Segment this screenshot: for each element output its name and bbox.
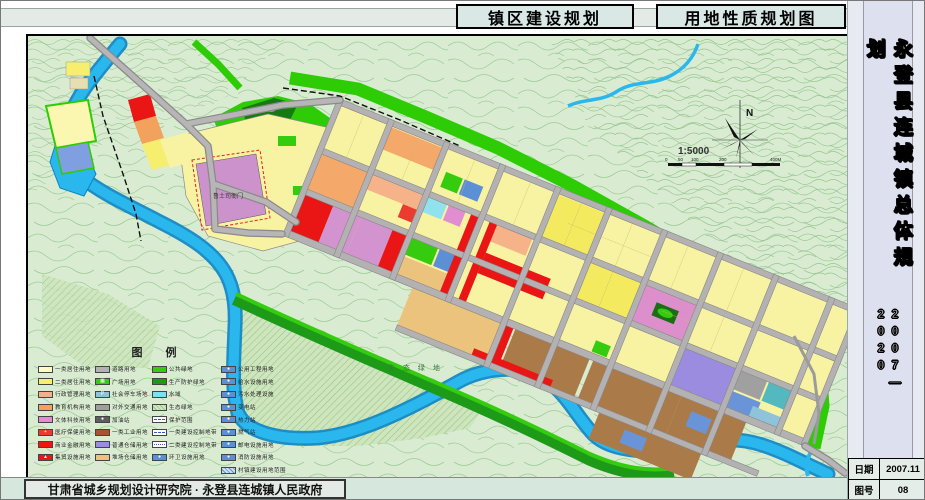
legend-swatch	[38, 366, 53, 373]
legend-item-label: 加油站	[112, 416, 130, 424]
legend-swatch: ▦	[95, 378, 110, 385]
legend-item-label: 保护范围	[169, 416, 193, 424]
legend-item-label: 水域	[169, 390, 181, 398]
heritage-site-label: 鲁土司衙门	[213, 192, 243, 200]
legend-item: ●燃气站	[221, 426, 286, 439]
legend-item: 道路用地	[95, 363, 148, 376]
legend-item-label: 行政管理用地	[55, 390, 91, 398]
legend-item: ▦广场用地	[95, 376, 148, 389]
legend-item: ●热力站	[221, 413, 286, 426]
legend-swatch	[95, 454, 110, 461]
scale-ratio: 1:5000	[678, 146, 710, 157]
svg-text:400M: 400M	[770, 157, 782, 162]
title-block: 永登县连城镇总体规划 2007—2020 日期 2007.11 图号 08	[847, 1, 925, 500]
legend-item: 普通仓储用地	[95, 439, 148, 452]
legend-swatch	[152, 378, 167, 385]
legend-swatch	[38, 441, 53, 448]
legend-item-label: 文体科技用地	[55, 416, 91, 424]
svg-text:100: 100	[691, 157, 699, 162]
legend-swatch	[38, 416, 53, 423]
legend-item: ●公用工程用地	[221, 363, 286, 376]
sheet-no-label: 图号	[848, 480, 880, 500]
legend-item-label: 二类建设控制地带	[169, 441, 217, 449]
village-cell	[70, 78, 88, 89]
legend-item-label: 消防设施用地	[238, 453, 274, 461]
green-cell	[278, 136, 296, 146]
legend-column: 道路用地▦广场用地P社会停车场地对外交通用地●加油站一类工业用地普通仓储用地堆场…	[95, 363, 148, 476]
legend-item-label: 医疗保健用地	[55, 428, 91, 436]
sheet-info-table: 日期 2007.11 图号 08	[848, 458, 925, 500]
village-blue-parcel	[56, 142, 94, 174]
credit-text: 甘肃省城乡规划设计研究院 · 永登县连城镇人民政府	[48, 481, 323, 498]
sheet-title-vertical: 永登县连城镇总体规划	[861, 39, 915, 297]
legend-item-label: 社会停车场地	[112, 390, 148, 398]
legend-item: 对外交通用地	[95, 401, 148, 414]
legend-item-label: 广场用地	[112, 378, 136, 386]
legend-swatch	[152, 416, 167, 423]
legend-item-label: 集贸设施用地	[55, 453, 91, 461]
plan-period: 2007—2020	[874, 307, 902, 459]
table-row: 日期 2007.11	[848, 459, 925, 480]
tab-landuse-plan: 用地性质规划图	[656, 4, 846, 29]
legend-item: ●邮电设施用地	[221, 439, 286, 452]
legend-item: 文体科技用地	[38, 413, 91, 426]
legend-item-label: 一类建设控制地带	[169, 428, 217, 436]
legend-swatch	[38, 378, 53, 385]
legend-item-label: 二类居住用地	[55, 378, 91, 386]
legend-item-label: 商业金融用地	[55, 441, 91, 449]
legend-column: ●公用工程用地●给水设施用地●污水处理设施●变电站●热力站●燃气站●邮电设施用地…	[221, 363, 286, 476]
legend-swatch: P	[95, 391, 110, 398]
legend-swatch	[152, 429, 167, 436]
legend-swatch	[152, 366, 167, 373]
legend-swatch: ●	[221, 366, 236, 373]
legend-item-label: 生态绿地	[169, 403, 193, 411]
legend-item-label: 一类工业用地	[112, 428, 148, 436]
title-column: 永登县连城镇总体规划 2007—2020	[863, 1, 913, 459]
date-label: 日期	[848, 459, 880, 480]
legend: 图 例 一类居住用地二类居住用地行政管理用地教育机构用地文体科技用地+医疗保健用…	[38, 344, 280, 472]
legend-swatch	[152, 404, 167, 411]
legend-item-label: 邮电设施用地	[238, 441, 274, 449]
legend-swatch: ●	[221, 454, 236, 461]
tab-construction-plan: 镇区建设规划	[456, 4, 634, 29]
legend-swatch: ●	[221, 404, 236, 411]
legend-swatch	[38, 404, 53, 411]
legend-swatch	[221, 467, 236, 474]
legend-item: 二类建设控制地带	[152, 439, 217, 452]
legend-swatch	[95, 429, 110, 436]
legend-item-label: 环卫设施用地	[169, 453, 205, 461]
legend-swatch	[38, 391, 53, 398]
legend-swatch	[152, 391, 167, 398]
legend-title: 图 例	[38, 344, 280, 360]
legend-swatch: ●	[221, 416, 236, 423]
legend-item-label: 生产防护绿地	[169, 378, 205, 386]
table-row: 图号 08	[848, 480, 925, 500]
svg-text:50: 50	[678, 157, 684, 162]
legend-item-label: 公用工程用地	[238, 365, 274, 373]
legend-item-label: 燃气站	[238, 428, 256, 436]
legend-item-label: 给水设施用地	[238, 378, 274, 386]
legend-item-label: 变电站	[238, 403, 256, 411]
legend-swatch	[95, 441, 110, 448]
svg-text:200: 200	[719, 157, 727, 162]
legend-swatch: +	[38, 429, 53, 436]
tab-label: 用地性质规划图	[684, 5, 817, 29]
legend-item: ●给水设施用地	[221, 376, 286, 389]
legend-item: ●消防设施用地	[221, 451, 286, 464]
legend-item: P社会停车场地	[95, 388, 148, 401]
legend-swatch: ●	[95, 416, 110, 423]
legend-item: 村镇建设用地范围	[221, 464, 286, 477]
legend-swatch: ●	[221, 391, 236, 398]
legend-item: 公共绿地	[152, 363, 217, 376]
legend-item: 水域	[152, 388, 217, 401]
legend-item-label: 堆场仓储用地	[112, 453, 148, 461]
legend-item: 一类工业用地	[95, 426, 148, 439]
plan-sheet: 镇区建设规划 用地性质规划图	[0, 0, 925, 500]
legend-item: +医疗保健用地	[38, 426, 91, 439]
legend-swatch: ●	[221, 429, 236, 436]
legend-item-label: 一类居住用地	[55, 365, 91, 373]
village-residential-1	[46, 100, 96, 148]
legend-item-label: 对外交通用地	[112, 403, 148, 411]
legend-item: 保护范围	[152, 413, 217, 426]
date-value: 2007.11	[880, 459, 925, 480]
legend-item: 生态绿地	[152, 401, 217, 414]
legend-column: 公共绿地生产防护绿地水域生态绿地保护范围一类建设控制地带二类建设控制地带●环卫设…	[152, 363, 217, 476]
legend-item-label: 村镇建设用地范围	[238, 466, 286, 474]
legend-item-label: 教育机构用地	[55, 403, 91, 411]
legend-swatch: ●	[152, 454, 167, 461]
legend-swatch: ●	[221, 441, 236, 448]
legend-item-label: 污水处理设施	[238, 390, 274, 398]
tab-label: 镇区建设规划	[488, 5, 602, 29]
legend-item: 生产防护绿地	[152, 376, 217, 389]
legend-item: 商业金融用地	[38, 439, 91, 452]
legend-swatch	[152, 441, 167, 448]
legend-item: ●变电站	[221, 401, 286, 414]
legend-columns: 一类居住用地二类居住用地行政管理用地教育机构用地文体科技用地+医疗保健用地商业金…	[38, 363, 280, 476]
legend-swatch	[95, 404, 110, 411]
map-canvas: N 1:5000 0 50 100 200 400M 鲁土司衙门 生 态 绿 地	[26, 34, 850, 481]
legend-item-label: 普通仓储用地	[112, 441, 148, 449]
legend-swatch: ▲	[38, 454, 53, 461]
legend-item: ●污水处理设施	[221, 388, 286, 401]
eco-green-label: 生 态 绿 地	[388, 363, 443, 372]
legend-swatch: ●	[221, 378, 236, 385]
legend-item: ●环卫设施用地	[152, 451, 217, 464]
legend-item: 堆场仓储用地	[95, 451, 148, 464]
legend-item: 二类居住用地	[38, 376, 91, 389]
legend-item: ▲集贸设施用地	[38, 451, 91, 464]
legend-item: 教育机构用地	[38, 401, 91, 414]
legend-item-label: 热力站	[238, 416, 256, 424]
credit-box: 甘肃省城乡规划设计研究院 · 永登县连城镇人民政府	[24, 479, 346, 499]
legend-item: 一类建设控制地带	[152, 426, 217, 439]
legend-column: 一类居住用地二类居住用地行政管理用地教育机构用地文体科技用地+医疗保健用地商业金…	[38, 363, 91, 476]
legend-item: 一类居住用地	[38, 363, 91, 376]
north-label: N	[746, 108, 753, 119]
legend-item-label: 公共绿地	[169, 365, 193, 373]
legend-swatch	[95, 366, 110, 373]
village-cell	[66, 62, 90, 76]
sheet-no-value: 08	[880, 480, 925, 500]
legend-item: ●加油站	[95, 413, 148, 426]
legend-item: 行政管理用地	[38, 388, 91, 401]
legend-item-label: 道路用地	[112, 365, 136, 373]
